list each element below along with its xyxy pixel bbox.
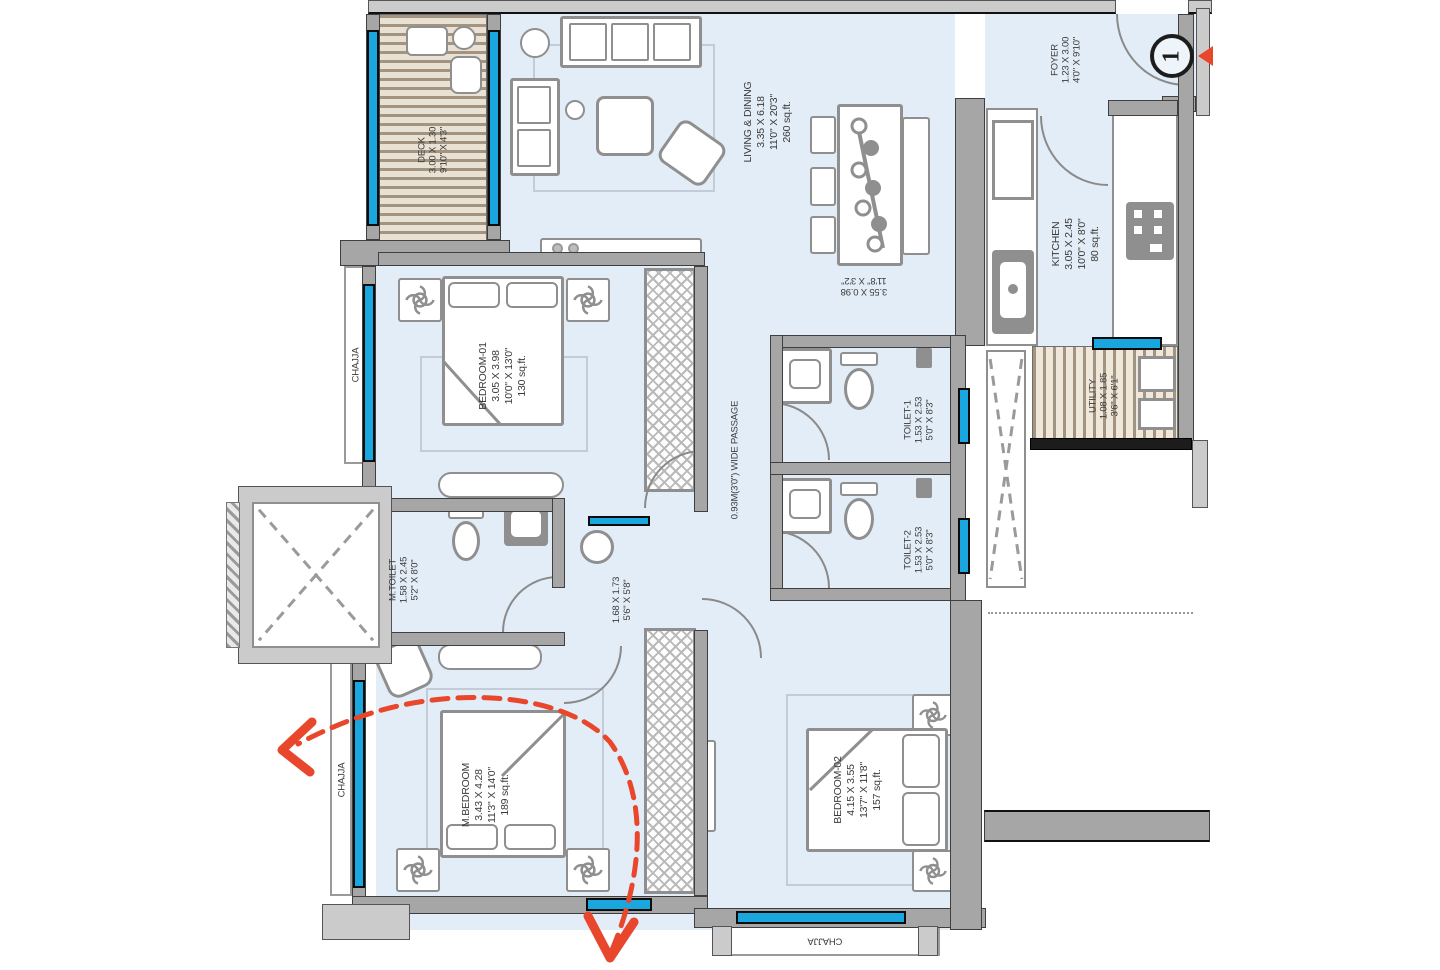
mtoilet-bottom-wall — [362, 632, 565, 646]
demising-wall — [984, 810, 1210, 842]
chajja-post-left — [712, 926, 732, 956]
arrowhead-left-icon — [282, 722, 312, 772]
bedroom01-top-wall — [378, 252, 705, 266]
wc-bowl — [452, 521, 480, 561]
plant-icon — [402, 854, 434, 886]
corner-block — [322, 904, 410, 940]
kitchen-sink — [992, 250, 1034, 334]
boundary-dotted-line — [988, 612, 1193, 614]
bedroom02-bottom-window — [736, 911, 906, 924]
elevator-x-mark — [254, 504, 378, 646]
deck-chair — [450, 56, 482, 94]
mtoilet-right-wall — [552, 498, 565, 588]
nightstand — [566, 278, 610, 322]
duct-shaft — [986, 350, 1026, 588]
pillow — [448, 282, 500, 308]
plant-icon — [918, 856, 948, 886]
sofa-three-seat — [560, 16, 702, 68]
plant-icon — [918, 700, 948, 730]
wc-bowl — [844, 498, 874, 540]
chajja-post-right — [918, 926, 938, 956]
floor-plan: 1 DECK 3.00 X 1.30 9'10" X 4'3" LIVING &… — [0, 0, 1440, 970]
sofa-two-seat — [510, 78, 560, 176]
nightstand — [912, 850, 954, 892]
wc-tank — [840, 482, 878, 496]
mbedroom-bottom-window — [586, 898, 652, 911]
deck-right-window — [488, 30, 500, 226]
fridge — [992, 120, 1034, 200]
duct-x-mark — [988, 352, 1024, 586]
lobby-round-table — [580, 530, 614, 564]
deck-table-round — [452, 26, 476, 50]
dining-bench — [902, 117, 930, 255]
coffee-table — [596, 96, 654, 156]
mbedroom-left-window — [353, 680, 365, 888]
toilets-top-wall — [770, 335, 965, 348]
plant-icon — [572, 854, 604, 886]
dining-chair — [810, 167, 836, 206]
washbasin — [778, 348, 832, 404]
side-table — [565, 100, 585, 120]
plant-icon — [572, 284, 604, 316]
mbedroom-sofa — [438, 644, 542, 670]
living-right-wall — [955, 98, 985, 346]
elevator-shaft — [252, 502, 380, 648]
lobby-top-window — [588, 516, 650, 526]
right-lower-stub-wall — [1192, 440, 1208, 508]
pillow — [504, 824, 556, 850]
kitchen-top-stub-wall — [1108, 100, 1178, 116]
pillow — [902, 734, 940, 788]
bedroom01-left-window — [363, 284, 375, 462]
utility-sink — [1138, 398, 1176, 430]
plant-icon — [404, 284, 436, 316]
pillow — [902, 792, 940, 846]
nightstand — [566, 848, 610, 892]
entry-number: 1 — [1159, 50, 1186, 62]
utility-bottom-wall — [1030, 438, 1192, 450]
bedroom01-right-wall — [694, 266, 708, 512]
kitchen-hob — [1126, 202, 1174, 260]
deck-seat — [406, 26, 448, 56]
bedroom02-right-wall — [950, 600, 982, 930]
wc-tank — [840, 352, 878, 366]
floor-lamp — [520, 28, 550, 58]
mbedroom-wardrobe — [644, 628, 696, 894]
toilet1-window — [958, 388, 970, 444]
dining-chair — [810, 216, 836, 254]
dining-candles — [845, 112, 895, 258]
deck-left-window — [367, 30, 379, 226]
washing-machine — [1138, 356, 1176, 392]
toilet2-window — [958, 518, 970, 574]
foyer-right-wall — [1196, 8, 1210, 116]
shower-icon — [916, 348, 932, 368]
dining-chair — [810, 116, 836, 154]
toilets-mid-wall — [770, 462, 965, 475]
kitchen-right-wall — [1178, 14, 1194, 444]
kitchen-utility-window — [1092, 337, 1162, 350]
bed-bench — [438, 472, 564, 498]
shower-icon — [916, 478, 932, 498]
mbedroom-right-wall — [694, 630, 708, 896]
pillow — [446, 824, 498, 850]
top-wall — [368, 0, 1116, 14]
toilets-bottom-wall — [770, 588, 965, 601]
washbasin — [778, 478, 832, 534]
nightstand — [398, 278, 442, 322]
wc-bowl — [844, 368, 874, 410]
mtoilet-top-wall — [362, 498, 565, 512]
nightstand — [396, 848, 440, 892]
entry-number-marker: 1 — [1150, 34, 1194, 78]
pillow — [506, 282, 558, 308]
elevator-hatch-edge — [226, 502, 240, 648]
